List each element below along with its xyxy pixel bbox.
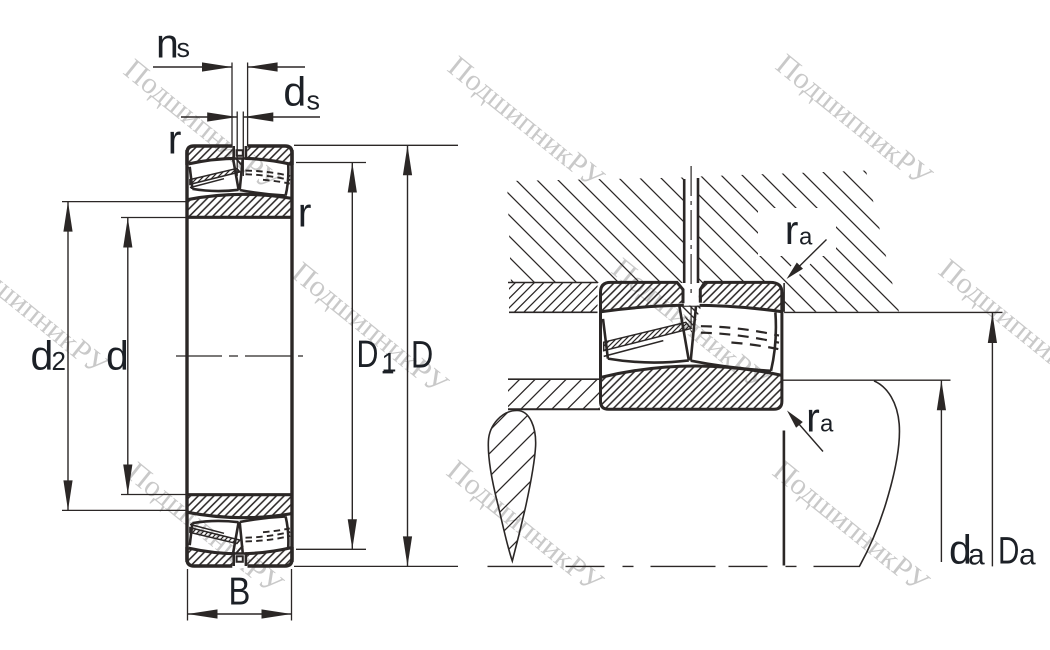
svg-text:r: r xyxy=(806,394,820,440)
svg-text:ПодшипникРУ: ПодшипникРУ xyxy=(286,256,455,402)
svg-text:B: B xyxy=(229,569,251,613)
svg-text:ПодшипникРУ: ПодшипникРУ xyxy=(767,454,936,600)
svg-text:D: D xyxy=(357,334,379,376)
svg-text:a: a xyxy=(820,411,834,438)
svg-text:D: D xyxy=(998,530,1019,572)
svg-text:d: d xyxy=(31,333,54,379)
svg-text:a: a xyxy=(799,224,813,251)
svg-text:ПодшипникРУ: ПодшипникРУ xyxy=(442,50,611,196)
svg-text:s: s xyxy=(177,33,191,63)
svg-text:n: n xyxy=(156,21,179,67)
svg-text:a: a xyxy=(1019,539,1036,572)
svg-text:a: a xyxy=(968,539,985,572)
svg-text:d: d xyxy=(106,333,129,379)
svg-text:r: r xyxy=(298,190,312,236)
svg-text:d: d xyxy=(283,68,306,114)
svg-text:D: D xyxy=(411,335,433,377)
svg-text:r: r xyxy=(785,207,799,253)
svg-text:r: r xyxy=(168,117,182,163)
svg-text:2: 2 xyxy=(52,346,66,376)
svg-text:s: s xyxy=(307,85,321,115)
